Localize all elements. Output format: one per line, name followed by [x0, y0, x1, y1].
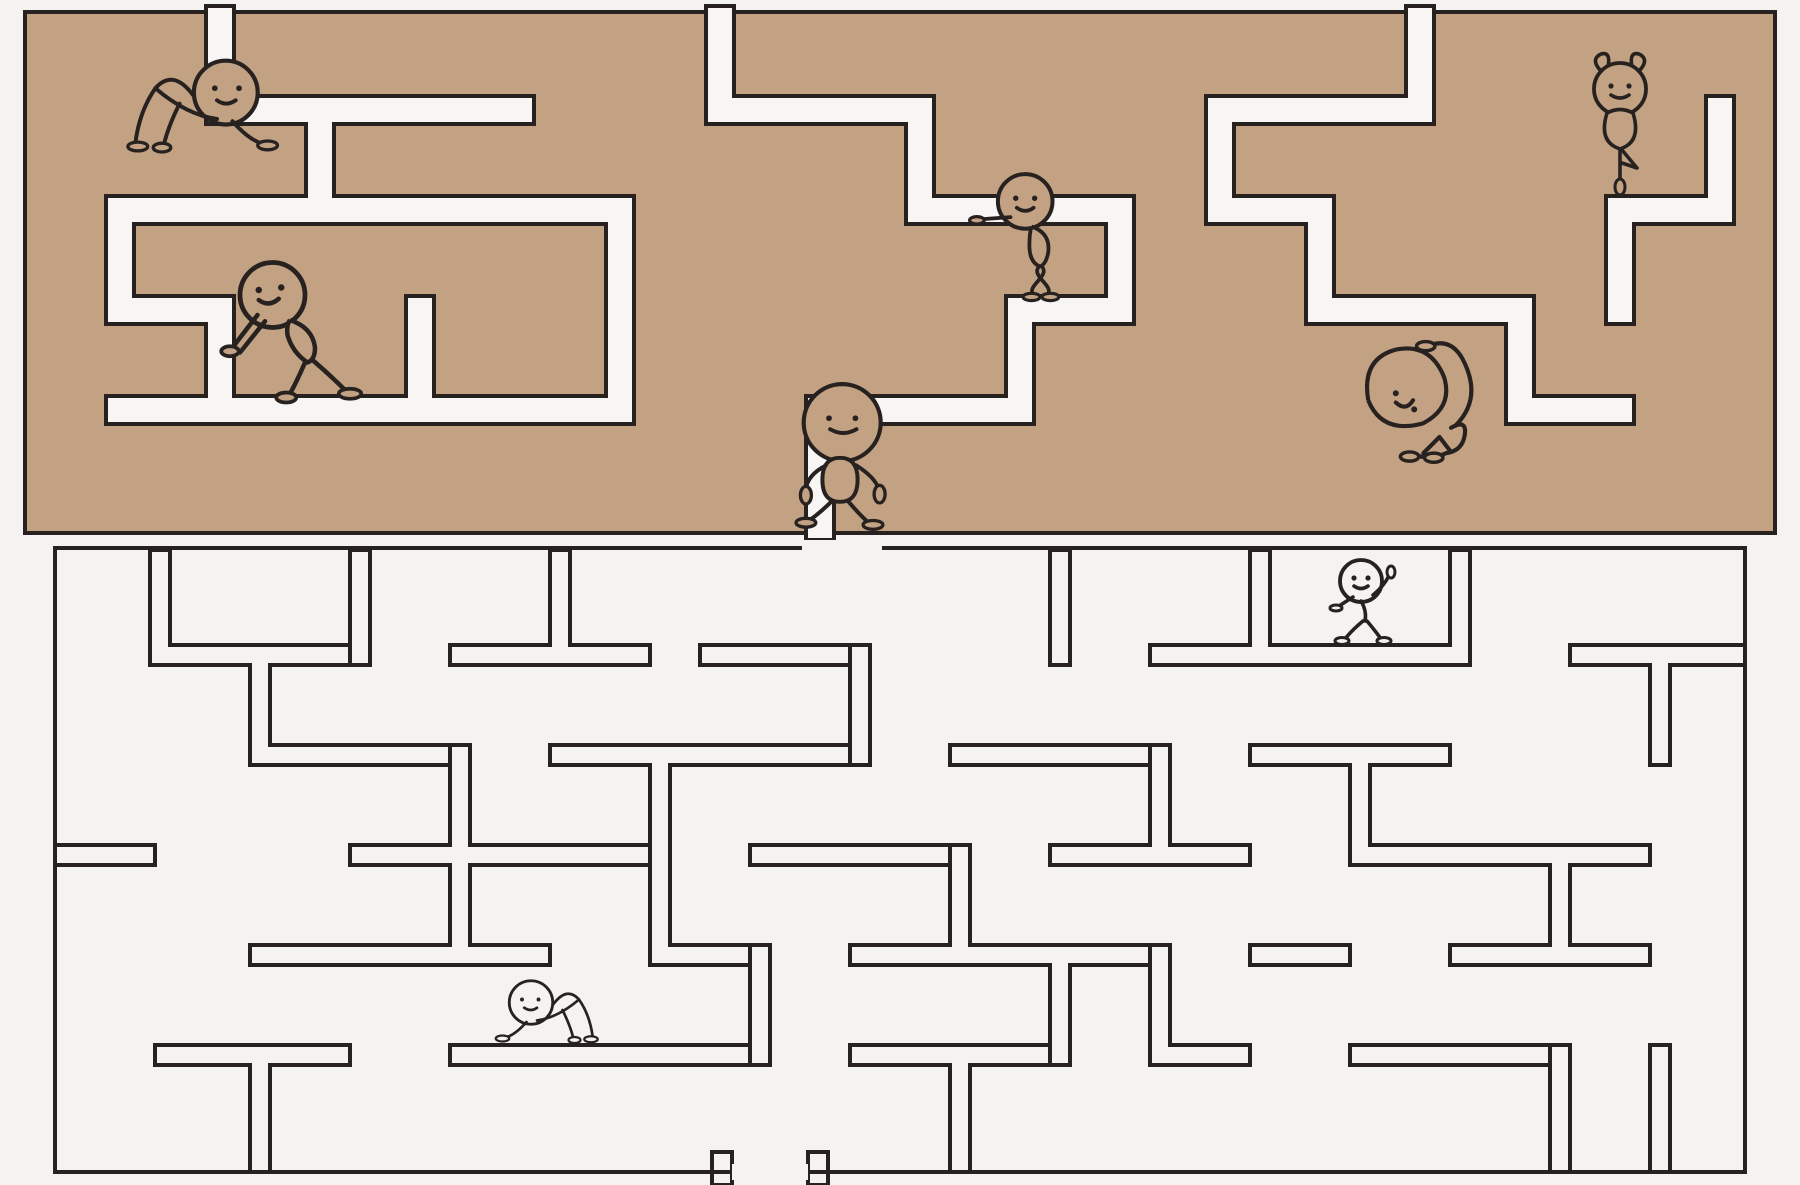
boundary-opening — [732, 1164, 808, 1180]
maze-illustration — [0, 0, 1800, 1185]
maze-canvas — [0, 0, 1800, 1185]
boundary-opening — [802, 540, 882, 556]
